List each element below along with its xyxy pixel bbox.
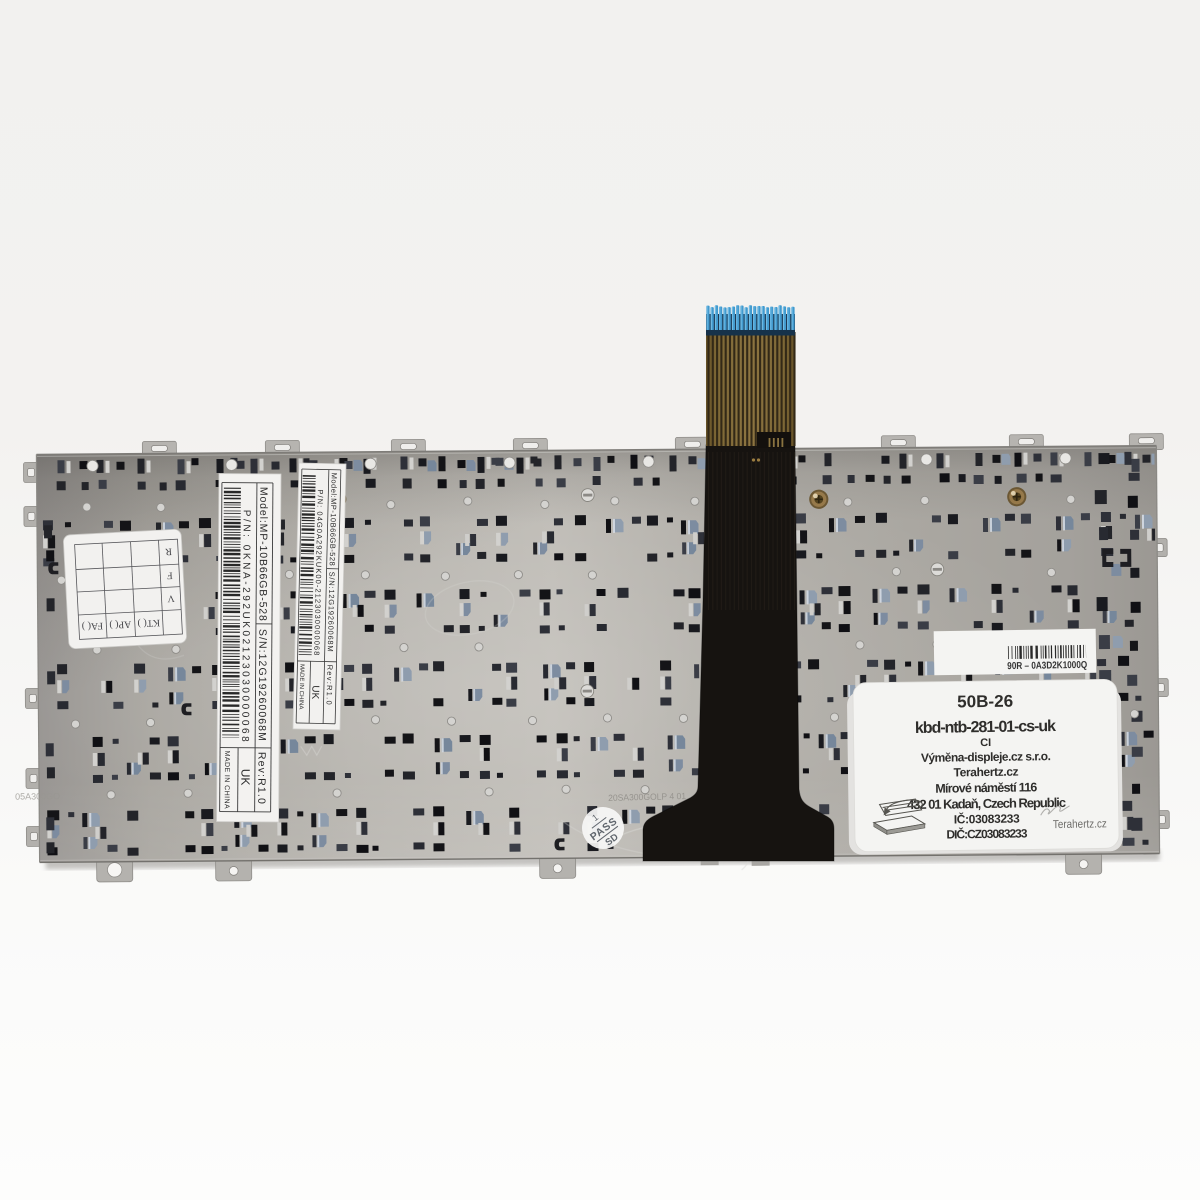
- svg-text:F: F: [166, 569, 173, 580]
- svg-text:UK: UK: [238, 769, 252, 786]
- svg-text:Terahertz.cz: Terahertz.cz: [954, 765, 1019, 780]
- svg-text:FA( ): FA( ): [82, 620, 104, 632]
- svg-text:Mírové náměstí 116: Mírové náměstí 116: [935, 780, 1037, 795]
- svg-text:IČ:03083233: IČ:03083233: [954, 811, 1021, 827]
- svg-text:AP( ): AP( ): [109, 618, 131, 630]
- svg-text:20SA300GOLP 4 01: 20SA300GOLP 4 01: [608, 791, 686, 803]
- svg-text:V: V: [166, 592, 175, 603]
- svg-text:S/N:12G19260068M: S/N:12G19260068M: [326, 572, 337, 652]
- svg-text:DIČ:CZ03083233: DIČ:CZ03083233: [946, 825, 1028, 841]
- svg-text:432 01 Kadaň, Czech Republic: 432 01 Kadaň, Czech Republic: [907, 795, 1066, 812]
- svg-text:KT( ): KT( ): [137, 617, 160, 629]
- svg-text:UK: UK: [309, 685, 320, 699]
- svg-text:50B-26: 50B-26: [957, 692, 1013, 712]
- svg-text:CI: CI: [980, 737, 991, 749]
- svg-text:Výměna-displeje.cz s.r.o.: Výměna-displeje.cz s.r.o.: [921, 749, 1051, 765]
- svg-text:Terahertz.cz: Terahertz.cz: [1053, 818, 1107, 831]
- svg-text:Rev:R1.0: Rev:R1.0: [325, 665, 335, 705]
- svg-text:kbd-ntb-281-01-cs-uk: kbd-ntb-281-01-cs-uk: [915, 718, 1056, 737]
- svg-text:MADE IN CHINA: MADE IN CHINA: [297, 664, 304, 709]
- svg-text:Model:MP-10B66GB-528: Model:MP-10B66GB-528: [256, 487, 269, 621]
- svg-text:R: R: [165, 546, 173, 557]
- svg-text:90R – 0A3D2K1000Q: 90R – 0A3D2K1000Q: [1007, 660, 1087, 672]
- svg-text:05A300GO: 05A300GO: [15, 791, 60, 801]
- svg-text:MADE IN CHINA: MADE IN CHINA: [223, 751, 230, 809]
- svg-text:P/N: 0KNA-292UK02123030000068: P/N: 0KNA-292UK02123030000068: [239, 510, 252, 743]
